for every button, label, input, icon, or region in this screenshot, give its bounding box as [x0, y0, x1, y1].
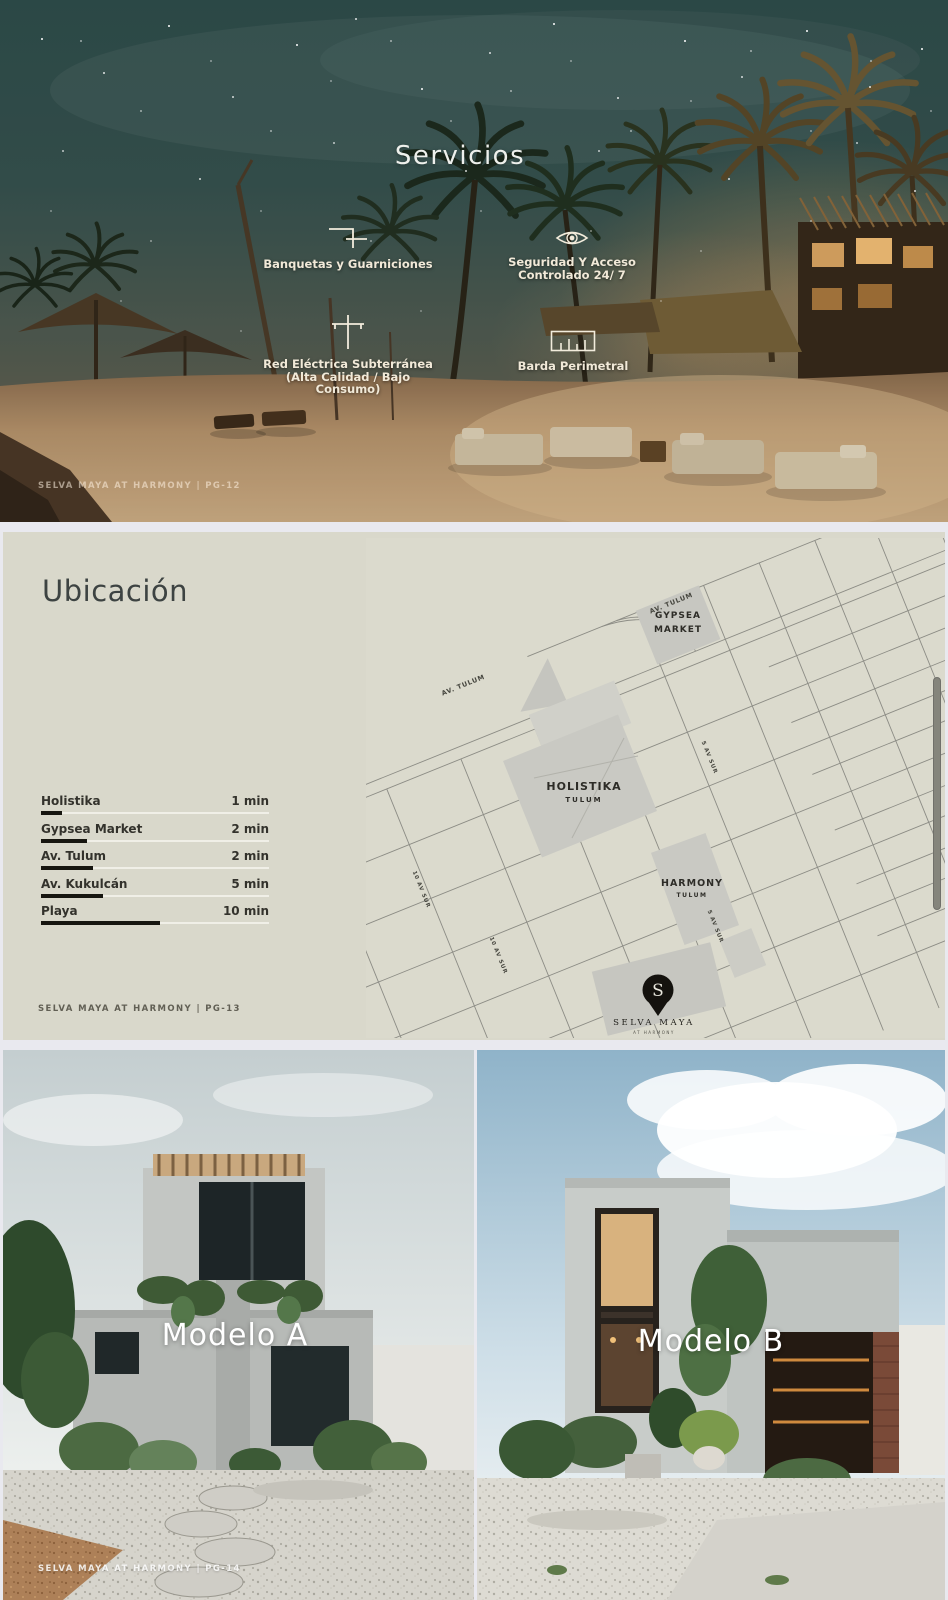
slide-ubicacion: Ubicación Holistika1 min Gypsea Market2 … — [3, 532, 945, 1040]
distance-bar — [41, 866, 93, 870]
distance-value: 2 min — [231, 822, 269, 836]
distance-label: Playa — [41, 904, 78, 918]
distance-value: 1 min — [231, 794, 269, 808]
distance-row: Av. Kukulcán5 min — [41, 873, 269, 901]
service-label-line2: (Alta Calidad / Bajo Consumo) — [286, 370, 410, 397]
page-title-ubicacion: Ubicación — [42, 574, 188, 608]
distance-label: Av. Kukulcán — [41, 877, 127, 891]
distance-label: Gypsea Market — [41, 822, 142, 836]
document-viewer: Servicios Banquetas y Guarniciones Segur… — [0, 0, 948, 1600]
page-footer: SELVA MAYA AT HARMONY | Pg-12 — [38, 481, 241, 491]
place-gypsea-line2: MARKET — [654, 625, 702, 635]
service-item-barda: Barda Perimetral — [483, 330, 663, 373]
distance-row: Gypsea Market2 min — [41, 818, 269, 846]
place-holistika-line2: TULUM — [565, 796, 602, 804]
curb-icon — [327, 226, 369, 250]
service-item-red-electrica: Red Eléctrica Subterránea (Alta Calidad … — [253, 314, 443, 396]
distance-rule — [41, 812, 269, 814]
distance-row: Av. Tulum2 min — [41, 845, 269, 873]
place-harmony-line1: HARMONY — [661, 878, 723, 889]
service-label-line2: Controlado 24/ 7 — [518, 268, 626, 282]
page-footer: SELVA MAYA AT HARMONY | Pg-13 — [38, 1004, 241, 1014]
model-b-label: Modelo B — [591, 1324, 831, 1359]
distance-value: 10 min — [223, 904, 269, 918]
place-harmony-line2: TULUM — [677, 892, 708, 899]
distance-bar — [41, 839, 87, 843]
place-holistika-line1: HOLISTIKA — [546, 780, 621, 793]
model-a-label: Modelo A — [115, 1318, 355, 1353]
pin-initial: S — [652, 981, 664, 1001]
distance-bar — [41, 811, 62, 815]
star-field — [0, 0, 2, 2]
scrollbar-thumb[interactable] — [933, 677, 941, 910]
pin-name: SELVA MAYA — [613, 1018, 695, 1028]
distance-label: Holistika — [41, 794, 101, 808]
distance-row: Playa10 min — [41, 900, 269, 928]
page-title-servicios: Servicios — [340, 141, 580, 171]
distance-value: 5 min — [231, 877, 269, 891]
place-gypsea-line1: GYPSEA — [655, 611, 701, 621]
slide-servicios: Servicios Banquetas y Guarniciones Segur… — [0, 0, 948, 522]
service-item-banquetas: Banquetas y Guarniciones — [258, 226, 438, 271]
service-label: Banquetas y Guarniciones — [263, 257, 432, 271]
service-label: Barda Perimetral — [518, 359, 629, 373]
distance-row: Holistika1 min — [41, 790, 269, 818]
distance-list: Holistika1 min Gypsea Market2 min Av. Tu… — [41, 790, 269, 928]
distance-bar — [41, 894, 103, 898]
power-line-icon — [330, 314, 366, 350]
eye-icon — [554, 228, 590, 248]
beach-night-photo — [0, 0, 948, 522]
page-footer: SELVA MAYA AT HARMONY | Pg-14 — [38, 1564, 241, 1574]
distance-value: 2 min — [231, 849, 269, 863]
location-map: AV. TULUM AV. TULUM 5 AV SUR 5 AV SUR 10… — [366, 538, 945, 1038]
distance-bar — [41, 921, 160, 925]
service-item-seguridad: Seguridad Y Acceso Controlado 24/ 7 — [482, 228, 662, 281]
pin-subtitle: AT HARMONY — [633, 1030, 675, 1035]
perimeter-wall-icon — [550, 330, 596, 352]
slide-modelos: Modelo A Modelo B SELVA MAYA AT HARMONY … — [3, 1050, 945, 1600]
distance-label: Av. Tulum — [41, 849, 106, 863]
